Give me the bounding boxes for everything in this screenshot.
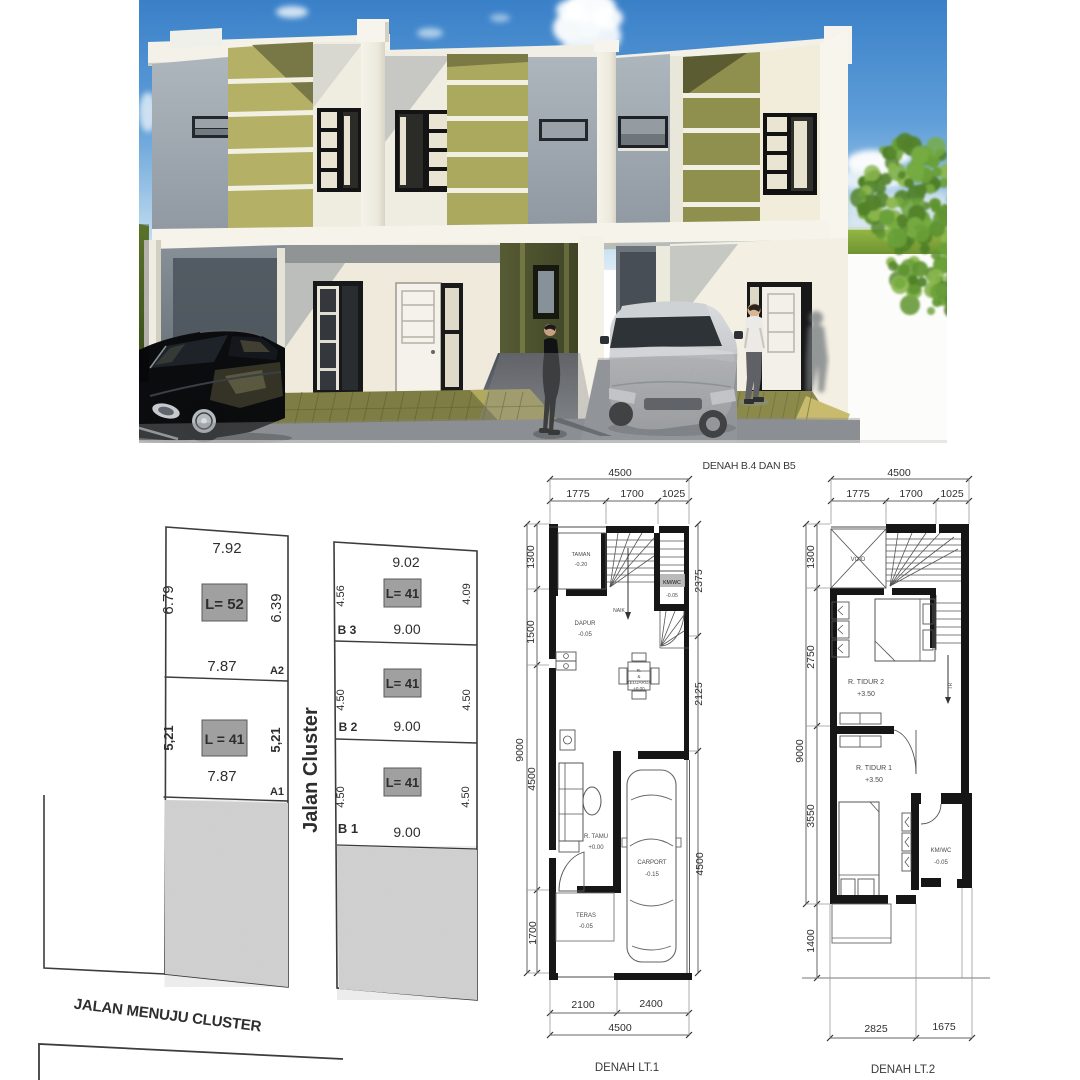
svg-text:2100: 2100: [571, 999, 595, 1011]
svg-text:9.02: 9.02: [392, 554, 419, 570]
svg-text:7.87: 7.87: [207, 658, 236, 675]
svg-text:DENAH LT.2: DENAH LT.2: [871, 1064, 935, 1076]
svg-text:3550: 3550: [805, 804, 817, 828]
svg-text:+0.00: +0.00: [633, 686, 645, 691]
svg-text:R. TIDUR 2: R. TIDUR 2: [848, 679, 884, 686]
svg-text:6.79: 6.79: [160, 585, 177, 614]
svg-text:2825: 2825: [864, 1023, 888, 1035]
svg-text:4500: 4500: [608, 467, 632, 479]
svg-text:9.00: 9.00: [393, 621, 420, 637]
svg-text:4500: 4500: [694, 852, 706, 876]
svg-text:L = 41: L = 41: [205, 731, 245, 747]
svg-text:1025: 1025: [940, 488, 964, 500]
svg-text:7.92: 7.92: [212, 540, 241, 557]
svg-text:-0.20: -0.20: [575, 562, 588, 568]
svg-text:6.39: 6.39: [268, 593, 285, 622]
svg-text:4.56: 4.56: [335, 585, 347, 606]
svg-text:Jalan Cluster: Jalan Cluster: [300, 707, 322, 833]
svg-text:9.00: 9.00: [393, 824, 420, 840]
svg-text:-0.05: -0.05: [578, 632, 592, 638]
svg-text:2750: 2750: [805, 645, 817, 669]
svg-text:NAIK: NAIK: [613, 608, 625, 614]
svg-text:9000: 9000: [514, 738, 526, 762]
svg-text:4.09: 4.09: [461, 583, 473, 604]
svg-text:5,21: 5,21: [161, 725, 176, 750]
svg-text:L= 41: L= 41: [386, 586, 420, 601]
svg-text:4.50: 4.50: [461, 689, 473, 710]
svg-text:TAMAN: TAMAN: [572, 552, 591, 558]
svg-text:1300: 1300: [525, 545, 537, 569]
svg-text:4.50: 4.50: [335, 786, 347, 807]
svg-text:KM/WC: KM/WC: [931, 848, 952, 854]
svg-text:L= 41: L= 41: [386, 676, 420, 691]
svg-text:1775: 1775: [846, 488, 870, 500]
svg-text:R.: R.: [637, 668, 642, 673]
svg-text:DAPUR: DAPUR: [574, 621, 596, 627]
svg-text:2125: 2125: [693, 682, 705, 706]
svg-text:-0.05: -0.05: [934, 860, 948, 866]
svg-text:A2: A2: [270, 665, 284, 677]
svg-text:DENAH B.4 DAN B5: DENAH B.4 DAN B5: [702, 460, 795, 472]
svg-text:4500: 4500: [526, 767, 538, 791]
svg-text:R. TIDUR 1: R. TIDUR 1: [856, 765, 892, 772]
svg-text:1700: 1700: [620, 488, 644, 500]
svg-text:7.87: 7.87: [207, 768, 236, 785]
svg-text:VOID: VOID: [851, 557, 866, 563]
svg-text:A1: A1: [270, 786, 284, 798]
svg-text:2400: 2400: [639, 998, 663, 1010]
svg-text:B 1: B 1: [338, 821, 358, 836]
svg-text:L= 52: L= 52: [205, 596, 244, 613]
svg-text:+3.50: +3.50: [865, 777, 883, 784]
svg-text:-0.15: -0.15: [645, 872, 659, 878]
svg-text:TR: TR: [948, 682, 954, 689]
svg-text:2375: 2375: [693, 569, 705, 593]
svg-text:+3.50: +3.50: [857, 691, 875, 698]
svg-text:-0.05: -0.05: [666, 593, 678, 599]
svg-text:4500: 4500: [608, 1022, 632, 1034]
svg-text:R. TAMU: R. TAMU: [584, 834, 608, 840]
svg-text:4500: 4500: [887, 467, 911, 479]
svg-text:KELUARGA: KELUARGA: [627, 680, 652, 685]
svg-text:DENAH LT.1: DENAH LT.1: [595, 1062, 659, 1074]
svg-text:L= 41: L= 41: [386, 775, 420, 790]
svg-text:+0.00: +0.00: [588, 845, 604, 851]
svg-text:B 2: B 2: [339, 720, 358, 734]
svg-text:4.50: 4.50: [460, 786, 472, 807]
svg-text:1400: 1400: [805, 929, 817, 953]
svg-text:9.00: 9.00: [393, 718, 420, 734]
svg-text:4.50: 4.50: [335, 689, 347, 710]
svg-text:1700: 1700: [527, 921, 539, 945]
svg-text:B 3: B 3: [338, 623, 357, 637]
svg-text:1675: 1675: [932, 1021, 956, 1033]
svg-text:KM/WC: KM/WC: [663, 580, 681, 586]
svg-text:TERAS: TERAS: [576, 913, 596, 919]
svg-text:5,21: 5,21: [268, 727, 283, 752]
svg-text:1500: 1500: [525, 620, 537, 644]
svg-text:1700: 1700: [899, 488, 923, 500]
svg-text:&: &: [637, 674, 640, 679]
svg-text:CARPORT: CARPORT: [637, 860, 667, 866]
svg-text:-0.05: -0.05: [579, 924, 593, 930]
svg-text:1025: 1025: [662, 488, 686, 500]
svg-text:9000: 9000: [794, 739, 806, 763]
svg-text:1300: 1300: [805, 545, 817, 569]
svg-text:1775: 1775: [566, 488, 590, 500]
